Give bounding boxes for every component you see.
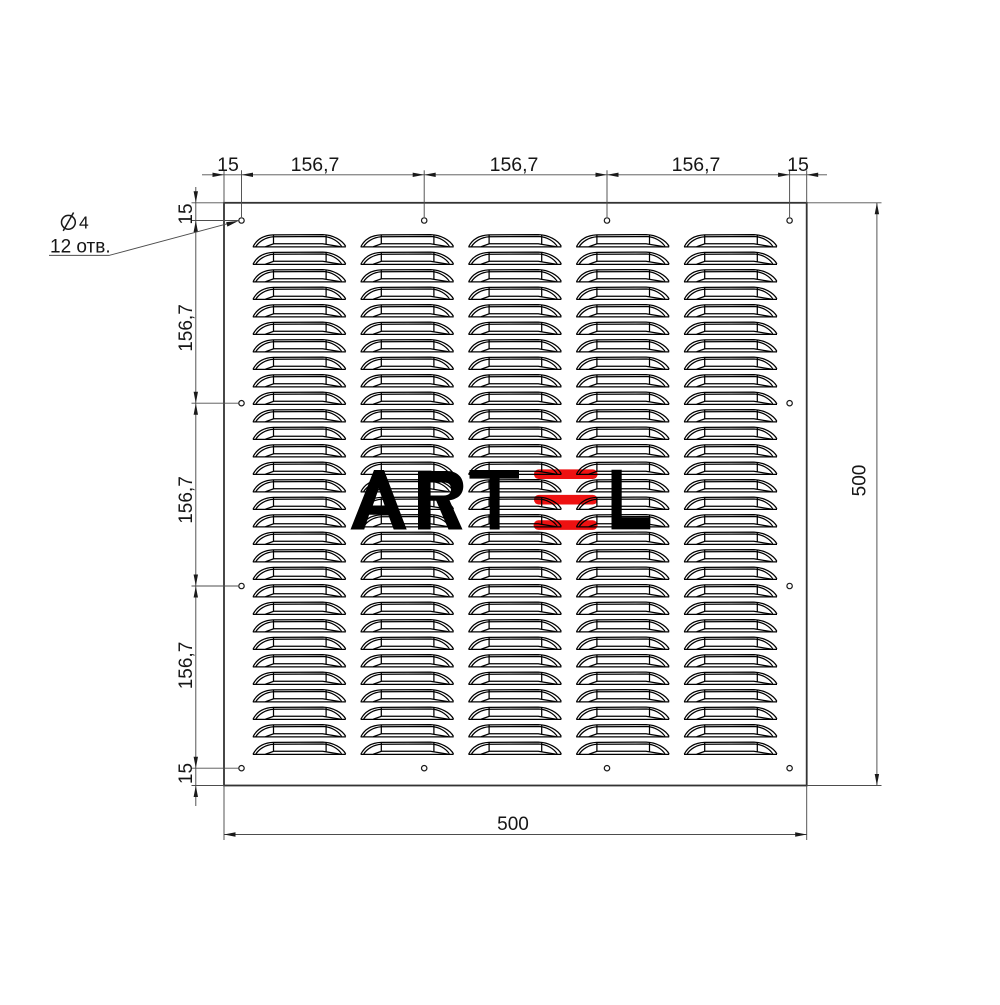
svg-text:12 отв.: 12 отв. — [50, 237, 111, 258]
svg-text:15: 15 — [176, 763, 197, 784]
svg-text:500: 500 — [497, 814, 529, 835]
svg-text:156,7: 156,7 — [176, 642, 197, 690]
svg-text:156,7: 156,7 — [176, 304, 197, 352]
svg-text:500: 500 — [850, 465, 871, 497]
svg-text:15: 15 — [787, 154, 809, 176]
svg-text:15: 15 — [176, 203, 197, 224]
svg-text:15: 15 — [217, 154, 239, 176]
svg-text:156,7: 156,7 — [176, 476, 197, 524]
svg-text:156,7: 156,7 — [490, 154, 539, 176]
svg-text:156,7: 156,7 — [291, 154, 340, 176]
svg-text:4: 4 — [79, 213, 89, 233]
svg-text:156,7: 156,7 — [672, 154, 721, 176]
